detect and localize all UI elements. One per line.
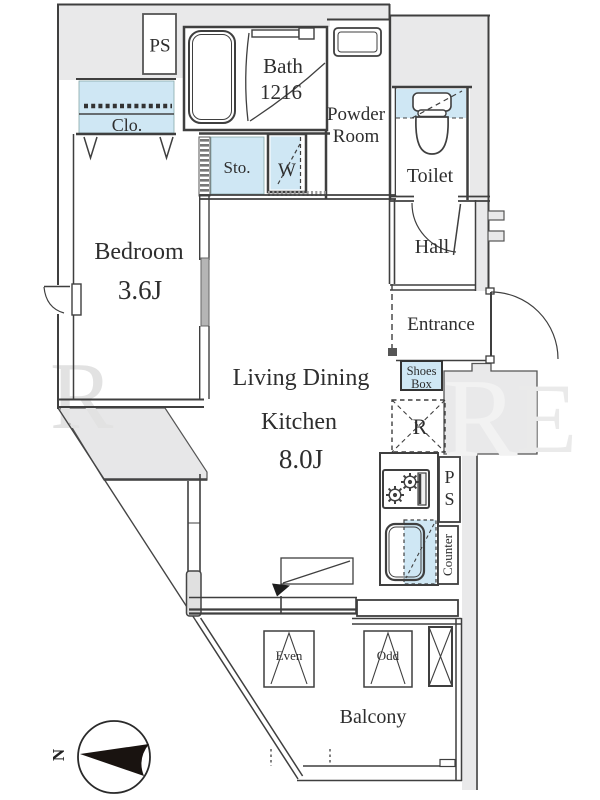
svg-text:Room: Room [333,126,380,147]
svg-text:PS: PS [149,36,170,57]
svg-text:Bath: Bath [263,54,303,78]
svg-text:Odd: Odd [377,648,400,663]
svg-text:Sto.: Sto. [224,158,251,177]
svg-text:W: W [278,160,296,181]
svg-text:8.0J: 8.0J [279,444,323,474]
svg-text:R: R [413,414,428,439]
svg-text:N: N [49,748,68,761]
svg-text:Shoes: Shoes [407,364,437,378]
svg-text:Counter: Counter [440,533,455,576]
svg-text:Balcony: Balcony [340,706,407,728]
svg-text:Hall: Hall [415,236,450,258]
svg-text:Even: Even [276,648,303,663]
svg-text:Entrance: Entrance [407,314,475,335]
svg-text:3.6J: 3.6J [118,275,162,305]
svg-text:Living Dining: Living Dining [233,365,370,391]
svg-text:Clo.: Clo. [112,115,143,135]
svg-text:S: S [444,489,454,509]
svg-text:Toilet: Toilet [407,165,454,187]
svg-text:Powder: Powder [327,104,386,125]
svg-text:1216: 1216 [260,80,302,104]
svg-text:P: P [444,467,454,487]
svg-text:Bedroom: Bedroom [94,239,184,265]
svg-text:Box: Box [411,377,433,391]
svg-text:E: E [516,363,577,474]
svg-text:Kitchen: Kitchen [261,409,337,435]
svg-text:R: R [50,343,114,449]
